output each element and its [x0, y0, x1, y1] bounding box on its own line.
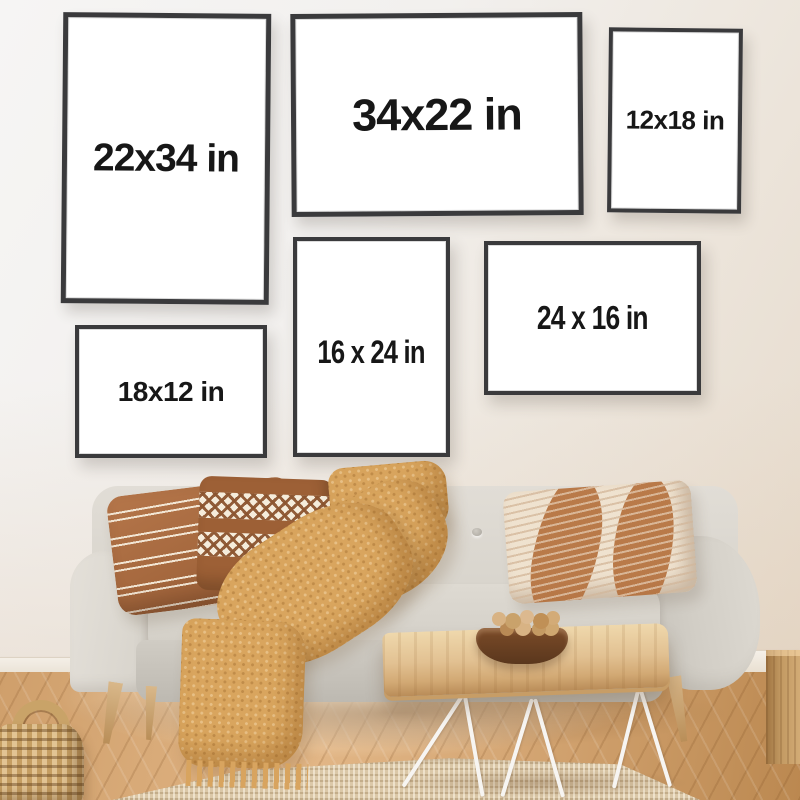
frame-18x12-in: 18x12 in — [75, 325, 267, 458]
frame-size-label: 12x18 in — [626, 104, 725, 136]
woven-basket — [0, 724, 84, 800]
frame-size-label: 18x12 in — [118, 376, 225, 408]
table-floor-shadow — [390, 768, 690, 798]
frame-size-label: 24 x 16 in — [537, 299, 648, 337]
sofa-tufting-button — [472, 528, 482, 536]
frame-size-label: 16 x 24 in — [318, 334, 425, 371]
blanket-fringe — [186, 760, 309, 790]
frame-34x22-in: 34x22 in — [290, 12, 583, 217]
frame-24x16-in: 24 x 16 in — [484, 241, 701, 395]
throw-blanket — [177, 618, 306, 770]
frame-12x18-in: 12x18 in — [607, 27, 743, 213]
living-room-poster-size-mockup: 22x34 in 34x22 in 12x18 in 16 x 24 in 24… — [0, 0, 800, 800]
frame-22x34-in: 22x34 in — [61, 12, 272, 305]
frame-size-label: 34x22 in — [352, 88, 522, 141]
pillow-stripe-overlay — [502, 480, 697, 605]
frame-16x24-in: 16 x 24 in — [293, 237, 450, 457]
nuts-in-bowl — [492, 612, 506, 626]
diagonal-stripe-pillow — [502, 480, 697, 605]
wood-cube-side-table — [766, 650, 800, 764]
frame-size-label: 22x34 in — [93, 136, 239, 181]
